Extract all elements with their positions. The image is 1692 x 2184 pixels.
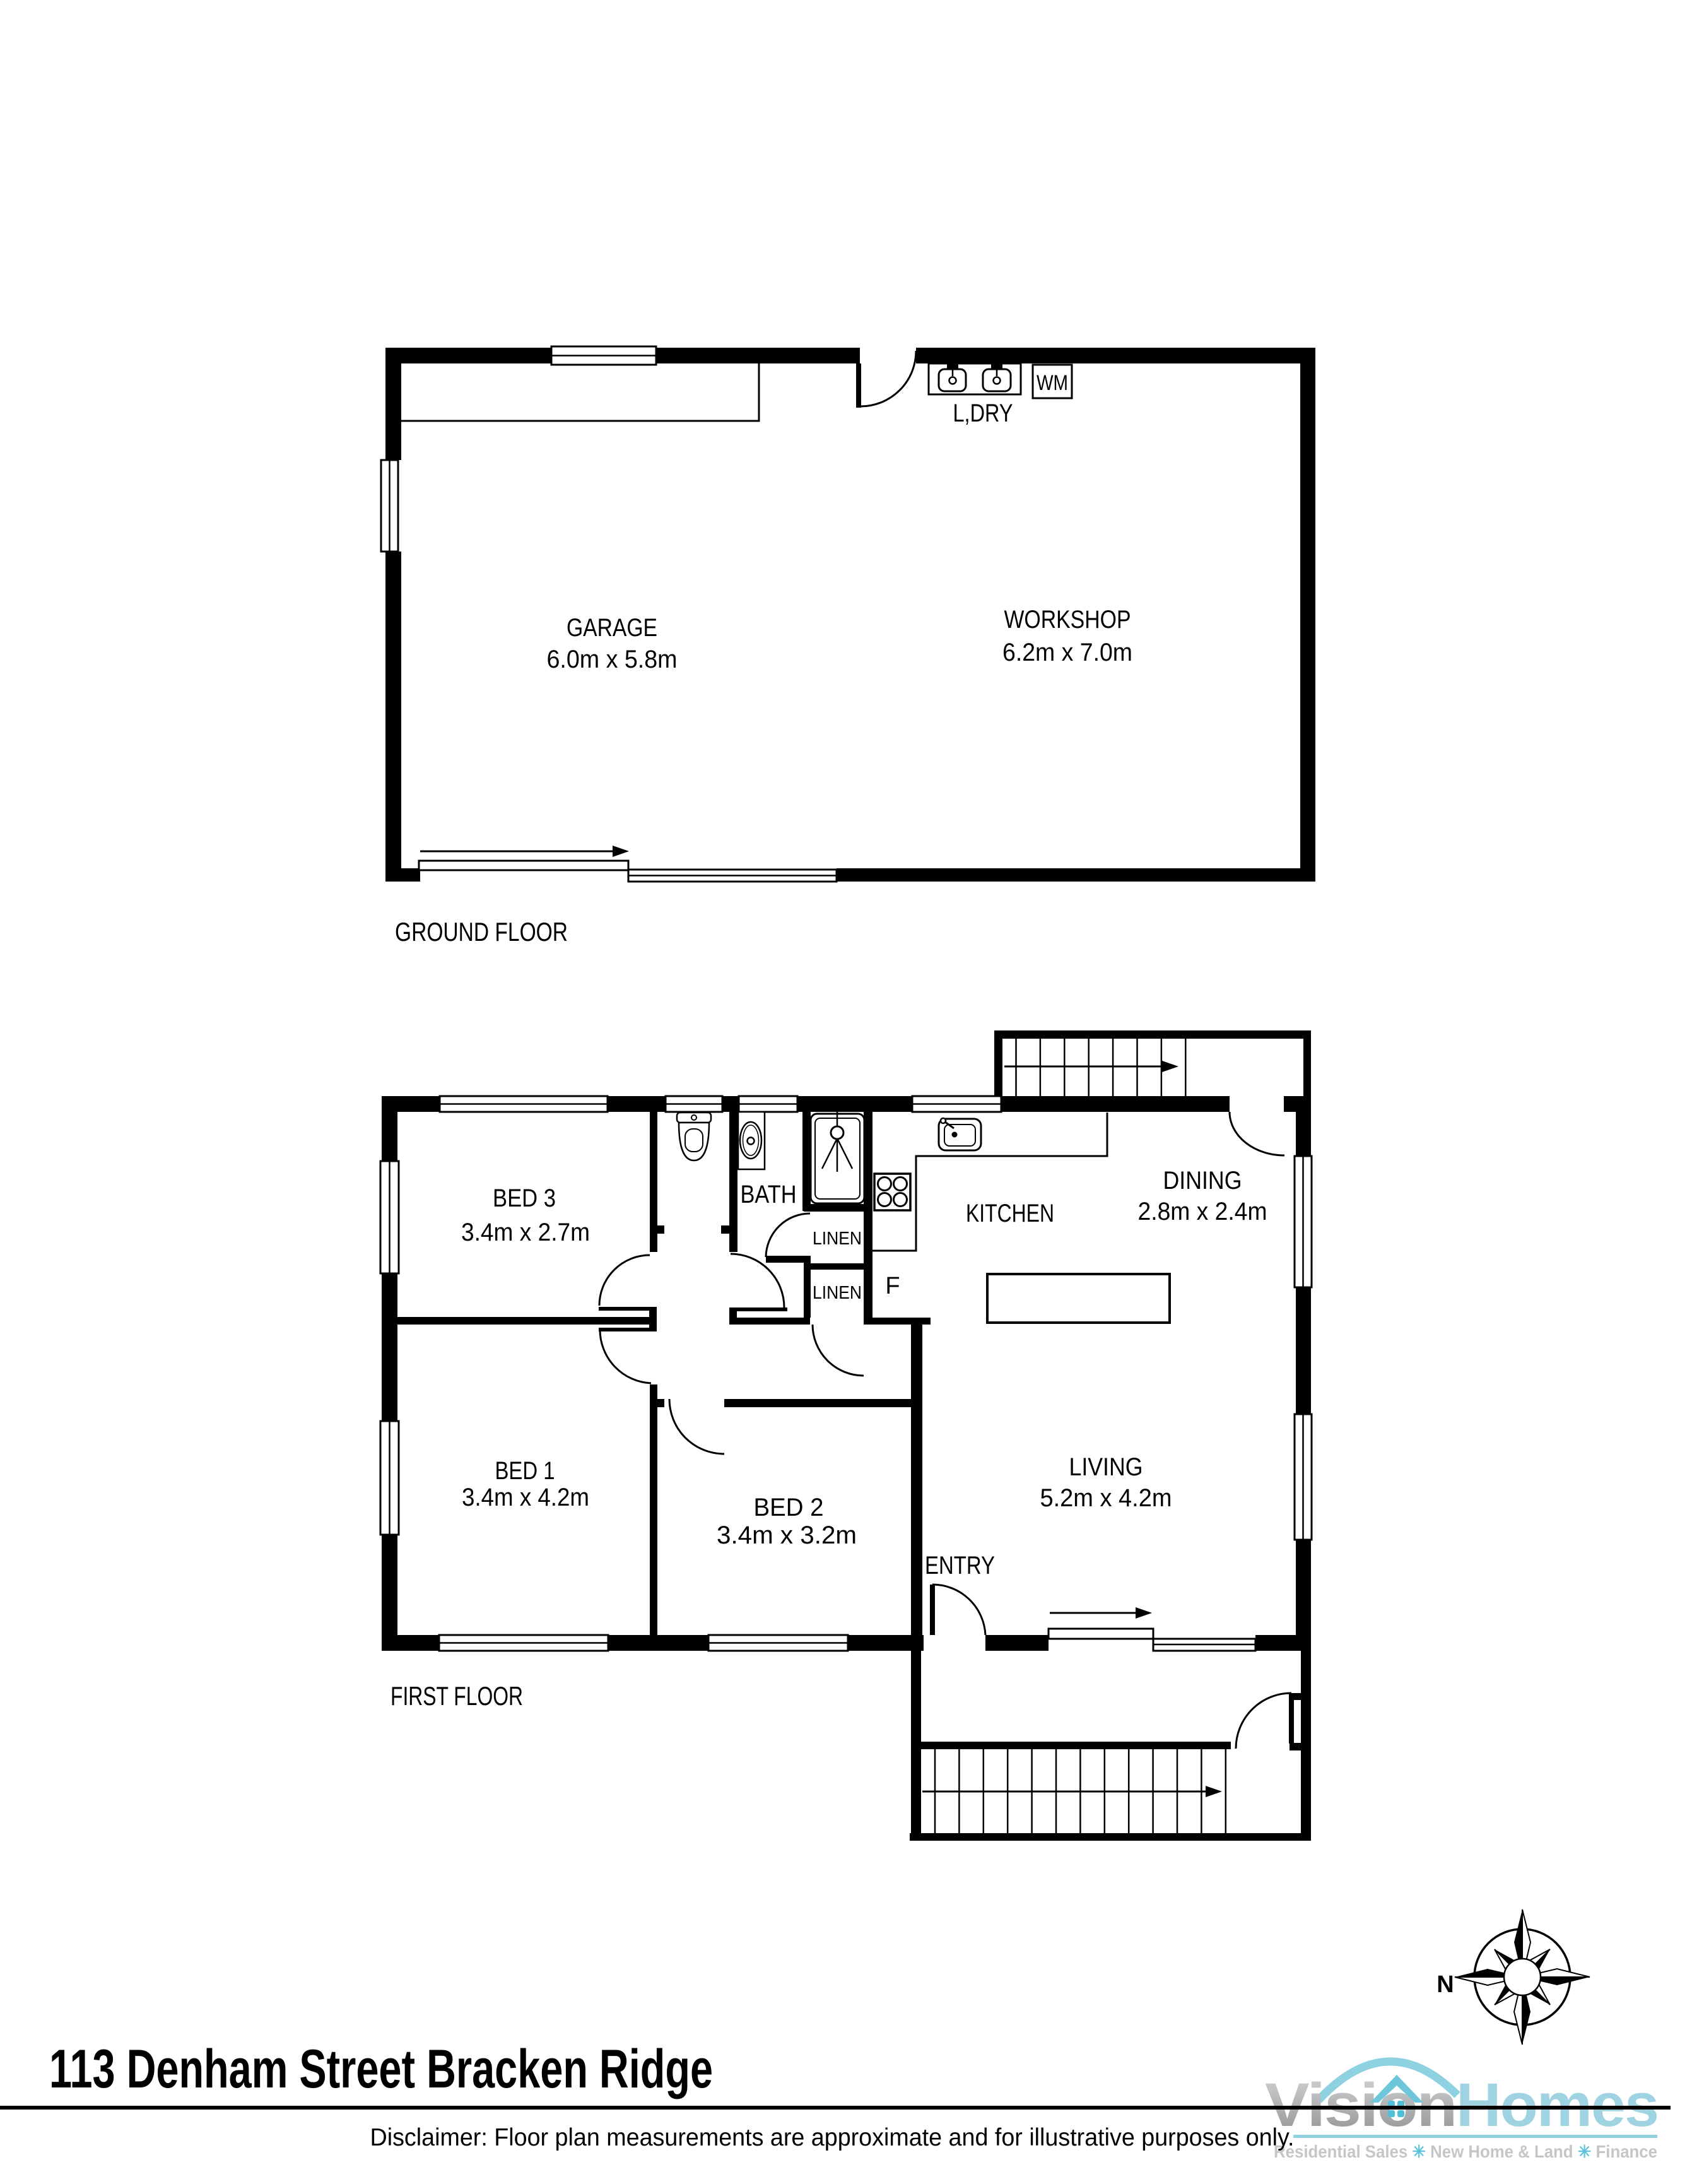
svg-text:FIRST FLOOR: FIRST FLOOR <box>391 1681 523 1711</box>
svg-text:BED 1: BED 1 <box>495 1457 555 1485</box>
svg-text:3.4m x 2.7m: 3.4m x 2.7m <box>461 1219 590 1246</box>
svg-text:BED 2: BED 2 <box>754 1494 824 1521</box>
svg-text:6.0m x 5.8m: 6.0m x 5.8m <box>547 646 678 673</box>
svg-text:ENTRY: ENTRY <box>925 1552 995 1579</box>
svg-text:6.2m x 7.0m: 6.2m x 7.0m <box>1002 639 1132 666</box>
svg-text:WM: WM <box>1037 371 1068 395</box>
svg-text:Homes: Homes <box>1456 2070 1658 2139</box>
svg-text:BED 3: BED 3 <box>493 1184 556 1212</box>
svg-text:LIVING: LIVING <box>1069 1453 1143 1481</box>
svg-text:DINING: DINING <box>1163 1167 1242 1195</box>
svg-text:Residential Sales ✳ New Home &: Residential Sales ✳ New Home & Land ✳ Fi… <box>1274 2142 1657 2161</box>
svg-text:113 Denham Street Bracken Ridg: 113 Denham Street Bracken Ridge <box>49 2039 713 2099</box>
svg-text:KITCHEN: KITCHEN <box>966 1200 1054 1227</box>
svg-text:L,DRY: L,DRY <box>953 399 1013 427</box>
svg-text:N: N <box>1436 1971 1454 1998</box>
svg-text:GROUND FLOOR: GROUND FLOOR <box>395 917 568 947</box>
svg-text:3.4m x 4.2m: 3.4m x 4.2m <box>462 1484 589 1511</box>
svg-text:F: F <box>885 1273 900 1299</box>
svg-text:LINEN: LINEN <box>813 1229 862 1249</box>
svg-text:5.2m x 4.2m: 5.2m x 4.2m <box>1040 1484 1172 1512</box>
svg-text:Disclaimer: Floor plan measure: Disclaimer: Floor plan measurements are … <box>370 2124 1295 2151</box>
svg-text:LINEN: LINEN <box>813 1283 862 1303</box>
svg-text:2.8m x 2.4m: 2.8m x 2.4m <box>1138 1198 1267 1225</box>
svg-text:3.4m x 3.2m: 3.4m x 3.2m <box>717 1521 857 1549</box>
svg-text:GARAGE: GARAGE <box>567 614 657 642</box>
svg-text:WORKSHOP: WORKSHOP <box>1004 606 1131 634</box>
svg-text:BATH: BATH <box>741 1181 797 1208</box>
